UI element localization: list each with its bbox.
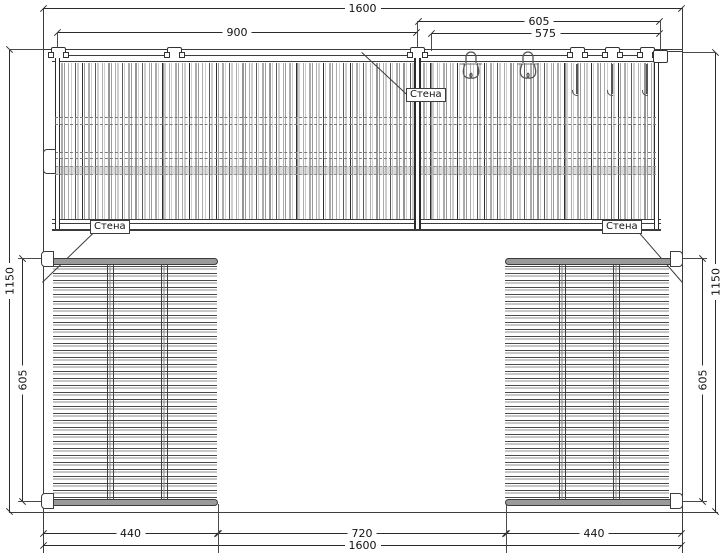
top-panel-cross-rail <box>55 117 656 125</box>
dimension-value: 440 <box>580 527 609 540</box>
top-mounting-rail-line <box>43 49 683 50</box>
top-panel-cross-rail <box>55 152 656 159</box>
dimension-value: 440 <box>116 527 145 540</box>
dimension-value: 900 <box>223 26 252 39</box>
wall-clip-icon <box>670 493 683 509</box>
lower-left-top-bar <box>52 258 218 265</box>
rail-wall-connector <box>666 51 683 52</box>
dimension-value: 1600 <box>345 539 381 552</box>
stringer <box>161 263 168 500</box>
dimension-bottom-total: 1600 <box>43 545 682 546</box>
dimension-value: 1150 <box>4 263 17 299</box>
extension-line <box>431 33 432 51</box>
single-hook-icon <box>576 64 578 94</box>
wall-label-right: Стена <box>602 220 642 234</box>
extension-line <box>9 49 43 50</box>
lower-right-bottom-bar <box>505 499 671 506</box>
mounting-clamp-icon <box>51 47 66 58</box>
dimension-value: 1150 <box>710 264 723 300</box>
wall-label-top: Стена <box>406 88 446 102</box>
horizontal-slats-hatch <box>53 266 217 498</box>
dimension-right-lower: 605 <box>702 258 703 502</box>
dimension-top-total: 1600 <box>43 8 682 9</box>
dimension-top-right-inner: 575 <box>431 33 660 34</box>
stringer <box>613 263 620 500</box>
dimension-left-lower: 605 <box>22 258 23 502</box>
single-hook-icon <box>646 64 648 94</box>
extension-line <box>218 504 219 553</box>
top-panel-bottom-rail <box>52 223 661 224</box>
mounting-clamp-icon <box>410 47 425 58</box>
double-hook-icon <box>456 50 486 90</box>
extension-line <box>681 501 707 502</box>
vertical-slats-hatch <box>55 63 656 219</box>
stringer <box>559 263 566 500</box>
dimension-bottom-middle: 720 <box>218 533 506 534</box>
dimension-top-left-section: 900 <box>57 32 417 33</box>
top-panel-rail-inner <box>52 61 661 62</box>
extension-line <box>660 21 661 51</box>
drawing-canvas: 1600 900 605 575 1150 605 1150 605 <box>0 0 725 560</box>
top-panel-cross-rail <box>55 166 656 175</box>
dimension-right-overall: 1150 <box>715 52 716 512</box>
double-hook-icon <box>513 50 543 90</box>
mounting-clamp-icon <box>167 47 182 58</box>
stringer <box>107 263 114 500</box>
dimension-left-overall: 1150 <box>9 49 10 512</box>
top-panel-right-post <box>654 55 659 229</box>
single-hook-icon <box>611 64 613 94</box>
wall-clip-icon <box>43 149 56 174</box>
panel-divider-post <box>414 50 421 229</box>
floor-line <box>9 512 718 513</box>
wall-clip-icon <box>670 251 683 267</box>
mounting-clamp-icon <box>570 47 585 58</box>
extension-line <box>681 258 707 259</box>
dimension-value: 1600 <box>345 2 381 15</box>
dimension-top-right-section: 605 <box>418 21 660 22</box>
top-panel-bottom-edge <box>52 219 661 220</box>
mounting-clamp-icon <box>605 47 620 58</box>
lower-left-bottom-bar <box>52 499 218 506</box>
lower-right-top-bar <box>505 258 671 265</box>
dimension-value: 575 <box>531 27 560 40</box>
extension-line <box>683 52 716 53</box>
dimension-value: 605 <box>17 366 30 395</box>
top-panel-bottom-rail <box>52 229 661 231</box>
dimension-bottom-left: 440 <box>43 533 218 534</box>
wall-clip-icon <box>41 251 54 267</box>
dimension-value: 605 <box>697 366 710 395</box>
wall-label-left: Стена <box>90 220 130 234</box>
rail-end-bracket-icon <box>653 50 668 63</box>
horizontal-slats-hatch <box>505 266 669 498</box>
wall-clip-icon <box>41 493 54 509</box>
top-panel-left-post <box>55 55 60 229</box>
dimension-bottom-right: 440 <box>506 533 682 534</box>
extension-line <box>506 504 507 553</box>
